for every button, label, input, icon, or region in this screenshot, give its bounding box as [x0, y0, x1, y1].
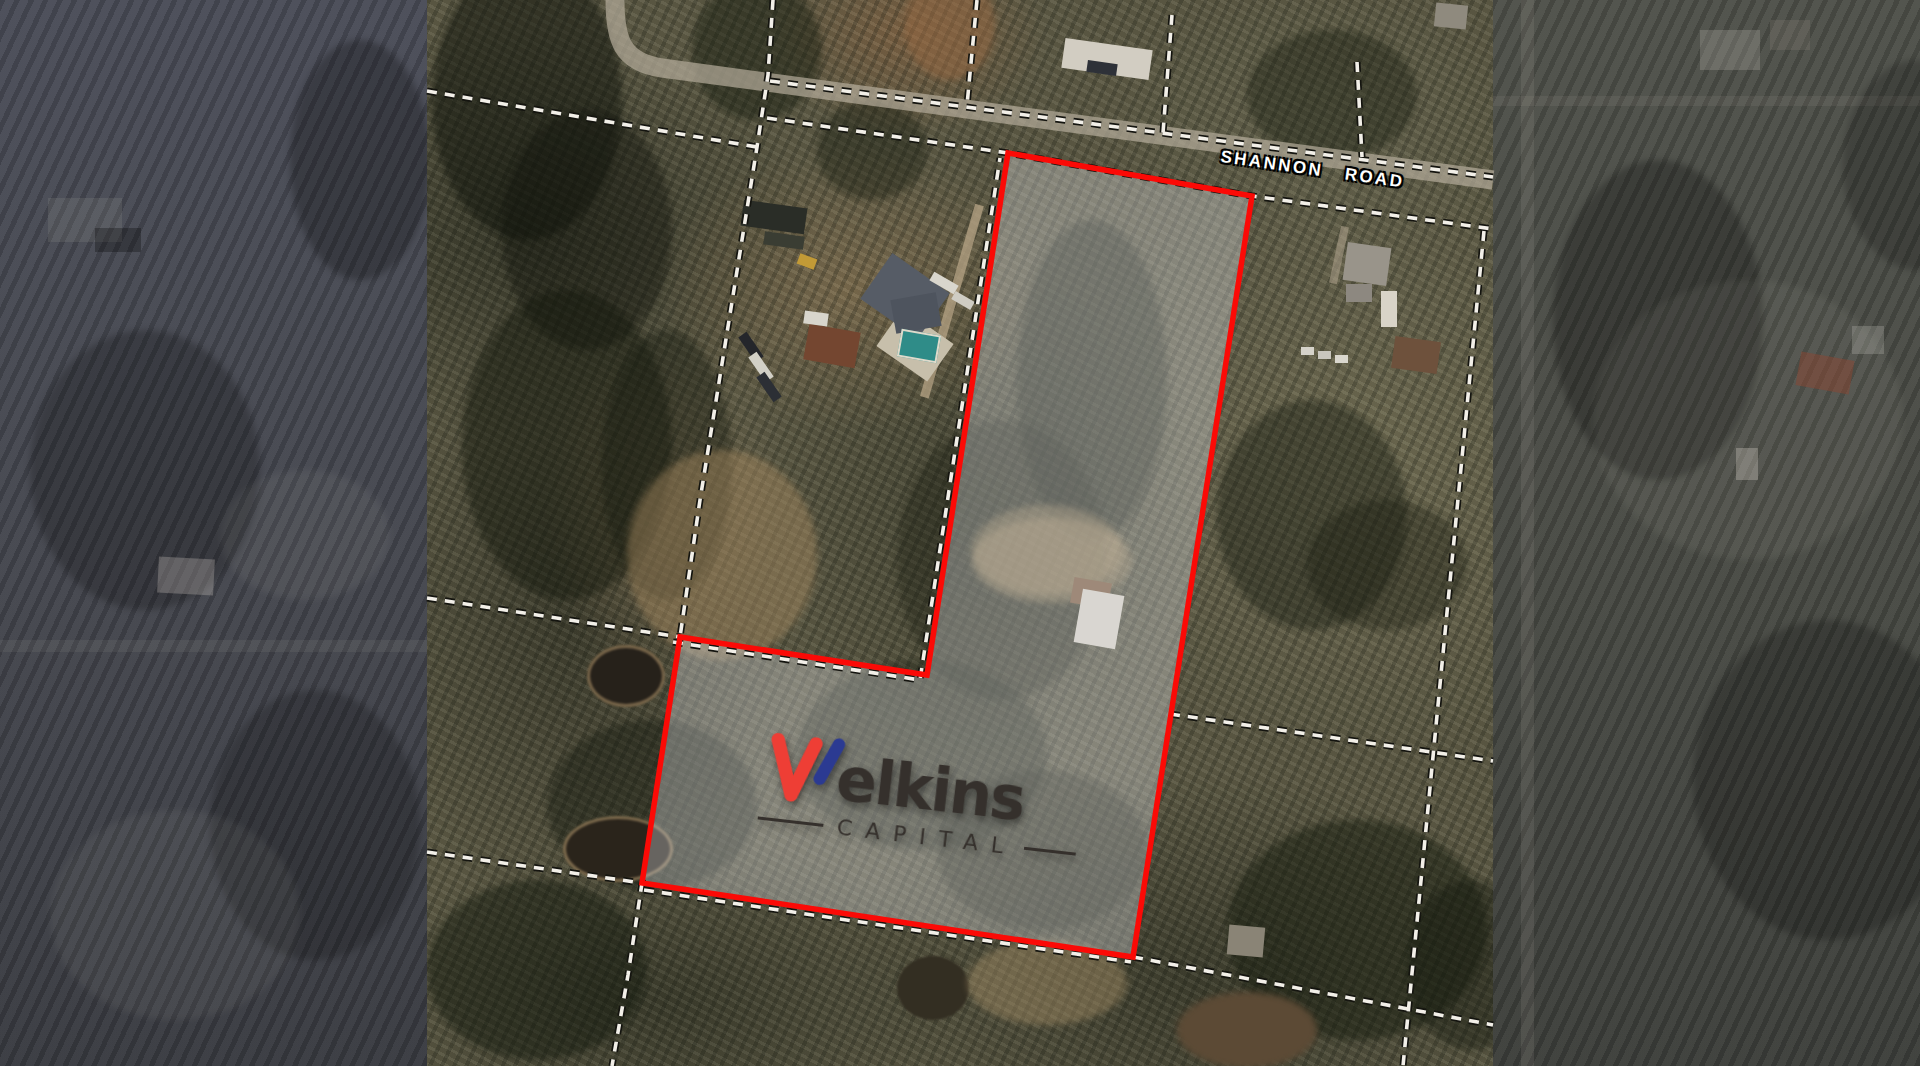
- logo-rule-left: [758, 816, 824, 826]
- map-overlay: [0, 0, 1920, 1066]
- logo-rule-right: [1024, 847, 1076, 856]
- road-label-gap: [1322, 176, 1344, 179]
- aerial-map: SHANNONROAD elkins CAPITAL: [0, 0, 1920, 1066]
